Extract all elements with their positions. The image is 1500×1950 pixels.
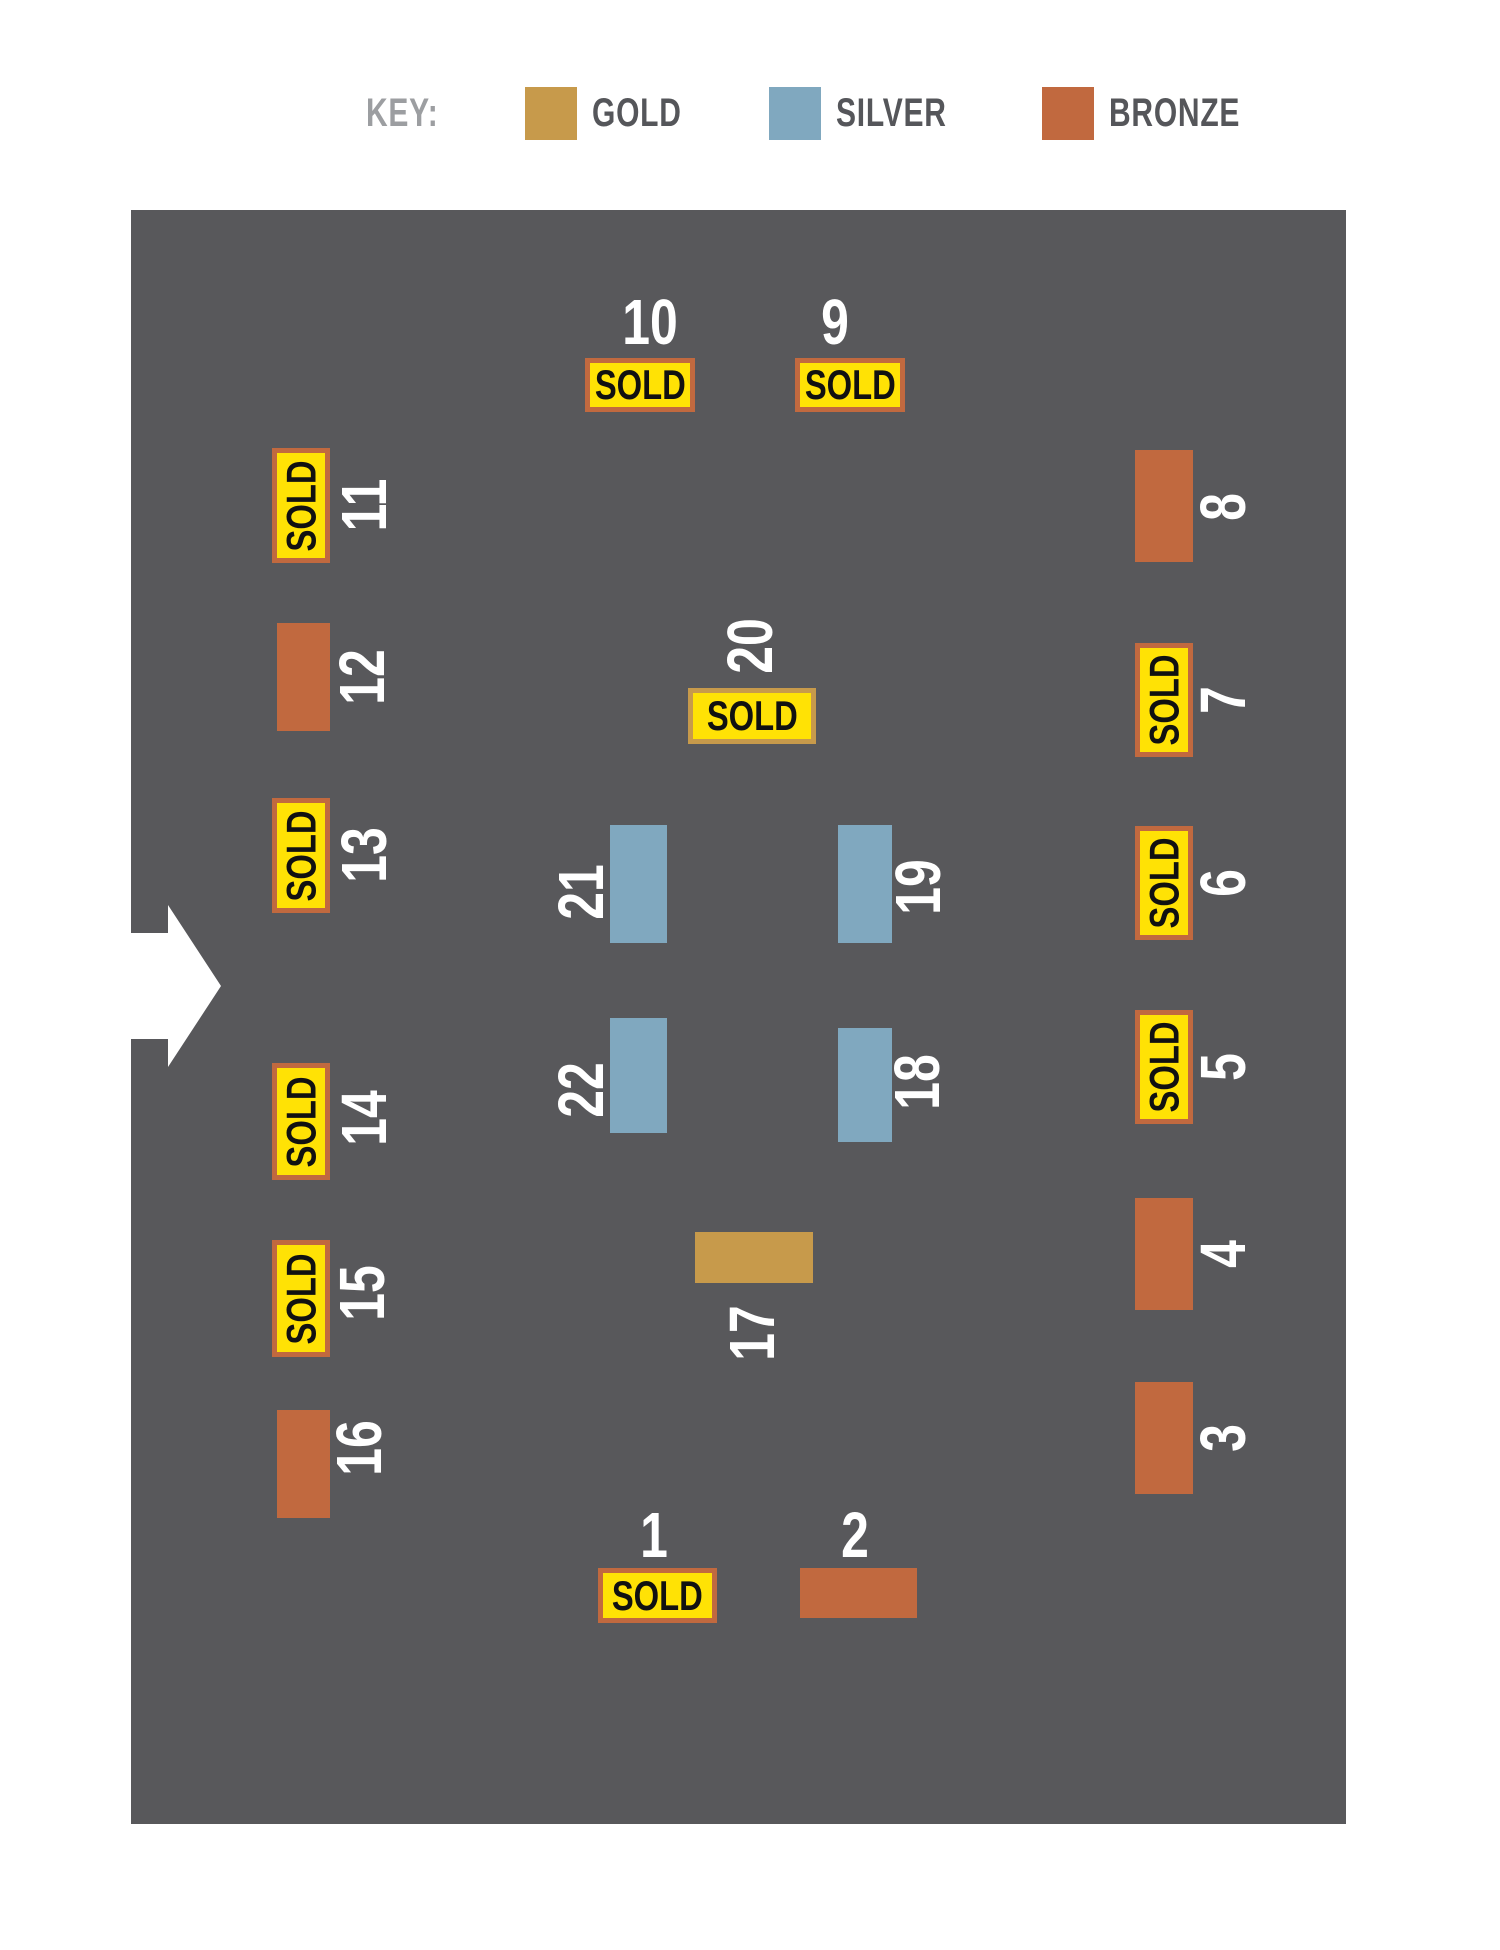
booth-13-sold-badge: SOLD xyxy=(272,798,330,913)
booth-13-sold-badge-face: SOLD xyxy=(277,803,325,908)
booth-18-spot-silver xyxy=(838,1028,892,1142)
booth-6-sold-badge: SOLD xyxy=(1135,826,1193,940)
booth-15-number: 15 xyxy=(330,1265,394,1321)
booth-4-number: 4 xyxy=(1191,1240,1255,1268)
booth-1-sold-badge: SOLD xyxy=(598,1568,717,1623)
booth-17-number: 17 xyxy=(720,1305,784,1361)
booth-1-number: 1 xyxy=(640,1503,668,1567)
booth-6-number: 6 xyxy=(1191,869,1255,897)
booth-13-number: 13 xyxy=(332,827,396,883)
legend-label-gold: GOLD xyxy=(592,91,682,136)
booth-8-spot-bronze xyxy=(1135,450,1193,562)
booth-16-spot-bronze xyxy=(277,1410,330,1518)
booth-10-number: 10 xyxy=(622,290,678,354)
booth-5-sold-badge: SOLD xyxy=(1135,1010,1193,1124)
booth-13-sold-label: SOLD xyxy=(280,810,322,901)
legend-title: KEY: xyxy=(366,91,438,136)
site-map: 1SOLD2345SOLD6SOLD7SOLD89SOLD10SOLD11SOL… xyxy=(131,210,1346,1824)
booth-11-number: 11 xyxy=(332,479,396,532)
entrance-arrow-icon xyxy=(131,905,221,1067)
booth-1-sold-badge-face: SOLD xyxy=(603,1573,712,1618)
legend: KEY: GOLD SILVER BRONZE xyxy=(366,86,1342,140)
booth-21-number: 21 xyxy=(549,864,613,920)
booth-11-sold-badge-face: SOLD xyxy=(277,453,325,558)
booth-12-number: 12 xyxy=(330,649,394,705)
booth-7-sold-badge-face: SOLD xyxy=(1140,648,1188,752)
booth-8-number: 8 xyxy=(1191,493,1255,521)
booth-1-sold-label: SOLD xyxy=(612,1575,703,1617)
booth-2-spot-bronze xyxy=(800,1568,917,1618)
booth-16-number: 16 xyxy=(327,1420,391,1476)
booth-10-sold-badge-face: SOLD xyxy=(590,363,690,407)
booth-9-sold-badge: SOLD xyxy=(795,358,905,412)
booth-22-number: 22 xyxy=(549,1062,613,1118)
booth-4-spot-bronze xyxy=(1135,1198,1193,1310)
booth-19-spot-silver xyxy=(838,825,892,943)
booth-3-spot-bronze xyxy=(1135,1382,1193,1494)
booth-9-sold-badge-face: SOLD xyxy=(800,363,900,407)
booth-9-number: 9 xyxy=(821,290,849,354)
bronze-swatch-icon xyxy=(1042,87,1094,140)
booth-9-sold-label: SOLD xyxy=(805,364,896,406)
silver-swatch-icon xyxy=(769,87,821,140)
booth-6-sold-label: SOLD xyxy=(1143,837,1185,928)
booth-15-sold-badge-face: SOLD xyxy=(277,1245,325,1352)
booth-21-spot-silver xyxy=(610,825,667,943)
booth-2-number: 2 xyxy=(841,1503,869,1567)
booth-20-sold-badge-face: SOLD xyxy=(693,693,811,739)
flyer-page: KEY: GOLD SILVER BRONZE 1SOLD2345SOLD6SO… xyxy=(0,0,1500,1950)
booth-20-number: 20 xyxy=(718,618,782,674)
booth-14-sold-badge: SOLD xyxy=(272,1063,330,1180)
booth-6-sold-badge-face: SOLD xyxy=(1140,831,1188,935)
booth-12-spot-bronze xyxy=(277,623,330,731)
booth-18-number: 18 xyxy=(885,1054,949,1110)
legend-label-silver: SILVER xyxy=(836,91,947,136)
booth-10-sold-label: SOLD xyxy=(595,364,686,406)
booth-19-number: 19 xyxy=(886,859,950,915)
booth-20-sold-label: SOLD xyxy=(706,695,797,737)
booth-14-sold-label: SOLD xyxy=(280,1076,322,1167)
legend-label-bronze: BRONZE xyxy=(1109,91,1240,136)
booth-10-sold-badge: SOLD xyxy=(585,358,695,412)
booth-22-spot-silver xyxy=(610,1018,667,1133)
booth-7-number: 7 xyxy=(1191,686,1255,714)
booth-11-sold-badge: SOLD xyxy=(272,448,330,563)
booth-15-sold-badge: SOLD xyxy=(272,1240,330,1357)
booth-11-sold-label: SOLD xyxy=(280,460,322,551)
booth-15-sold-label: SOLD xyxy=(280,1253,322,1344)
booth-14-number: 14 xyxy=(332,1090,396,1146)
booth-17-spot-gold xyxy=(695,1232,813,1283)
booth-7-sold-badge: SOLD xyxy=(1135,643,1193,757)
gold-swatch-icon xyxy=(525,87,577,140)
booth-5-sold-label: SOLD xyxy=(1143,1021,1185,1112)
booth-5-sold-badge-face: SOLD xyxy=(1140,1015,1188,1119)
booth-3-number: 3 xyxy=(1191,1424,1255,1452)
booth-5-number: 5 xyxy=(1191,1053,1255,1081)
booth-20-sold-badge: SOLD xyxy=(688,688,816,744)
booth-14-sold-badge-face: SOLD xyxy=(277,1068,325,1175)
booth-7-sold-label: SOLD xyxy=(1143,654,1185,745)
